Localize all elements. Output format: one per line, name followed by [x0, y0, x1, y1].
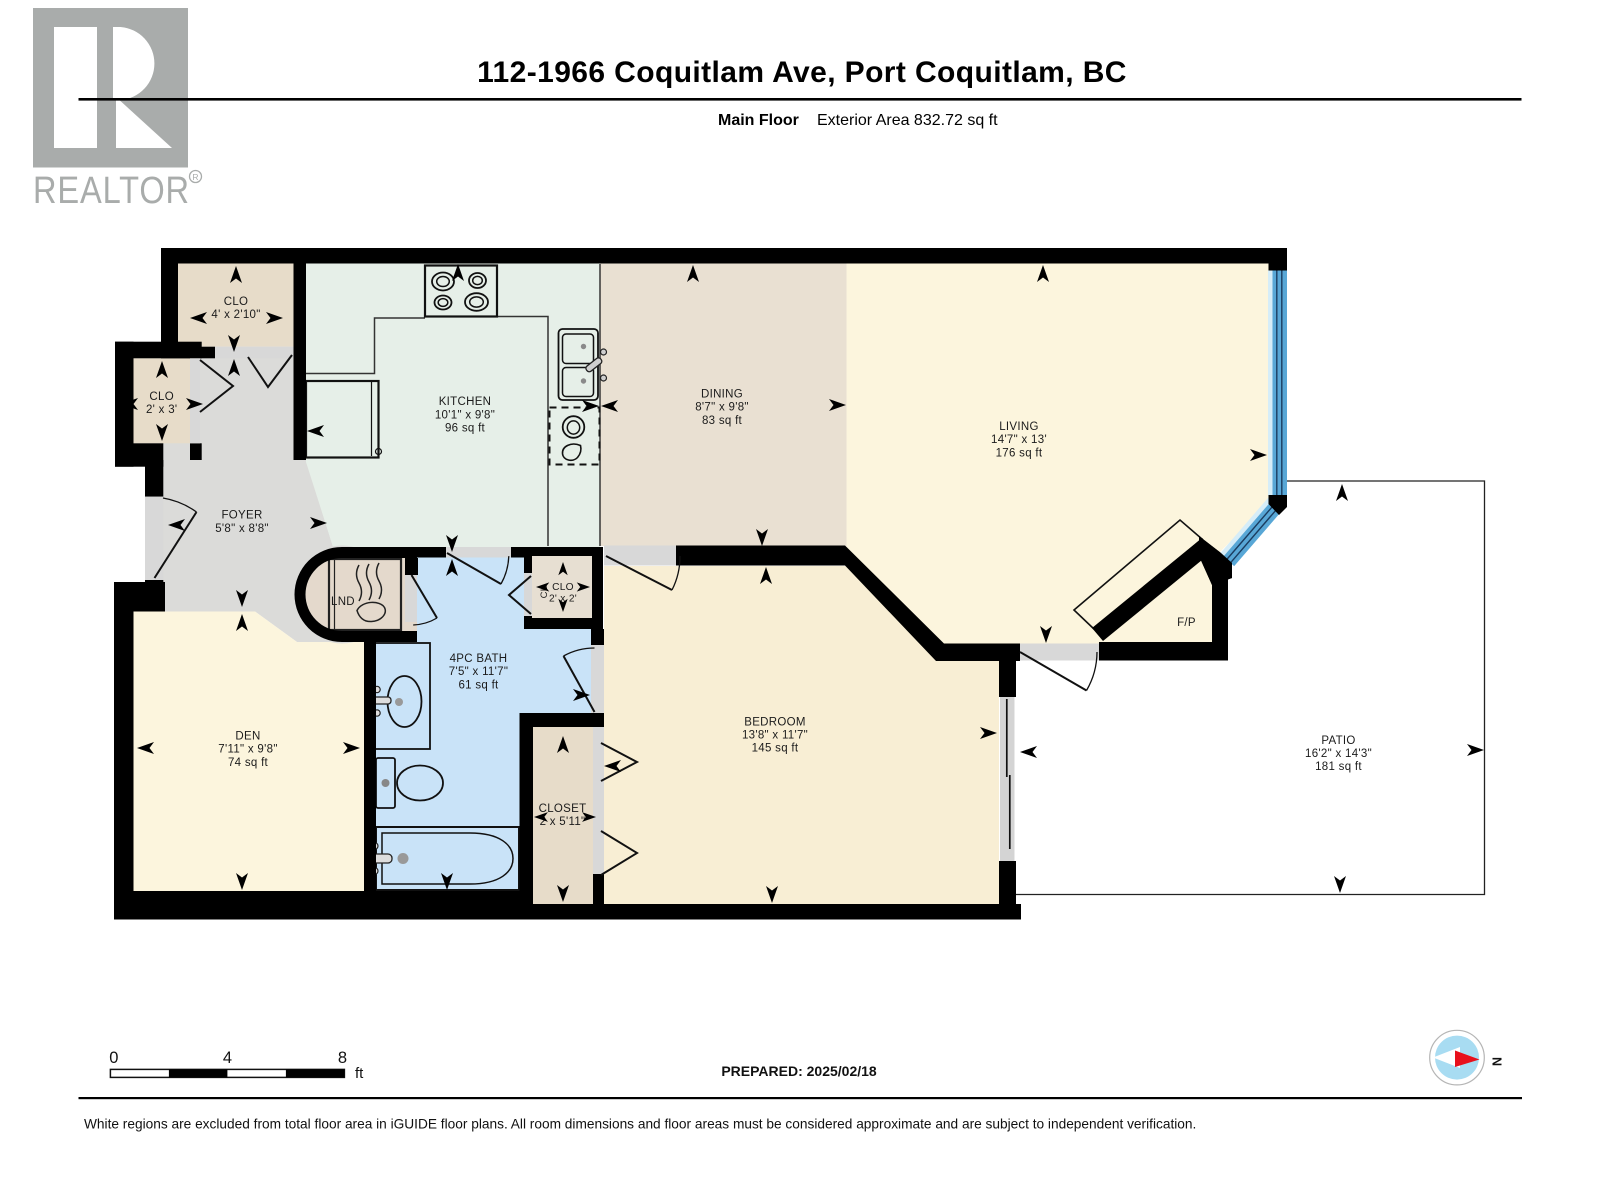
svg-text:145 sq ft: 145 sq ft — [752, 743, 799, 755]
svg-text:REALTOR: REALTOR — [33, 169, 190, 212]
svg-text:112-1966 Coquitlam Ave, Port C: 112-1966 Coquitlam Ave, Port Coquitlam, … — [477, 56, 1127, 89]
svg-text:7'5" x 11'7": 7'5" x 11'7" — [449, 666, 508, 678]
svg-text:4' x 2'10": 4' x 2'10" — [211, 309, 260, 321]
svg-text:83 sq ft: 83 sq ft — [702, 415, 743, 427]
svg-text:5'8" x 8'8": 5'8" x 8'8" — [215, 523, 269, 535]
svg-text:LND: LND — [331, 596, 355, 608]
svg-text:4PC BATH: 4PC BATH — [450, 653, 508, 665]
svg-text:KITCHEN: KITCHEN — [439, 396, 492, 408]
svg-text:176 sq ft: 176 sq ft — [996, 447, 1043, 459]
svg-text:7'11" x 9'8": 7'11" x 9'8" — [218, 744, 277, 756]
svg-text:181 sq ft: 181 sq ft — [1315, 761, 1362, 773]
svg-text:CLO: CLO — [149, 391, 174, 403]
svg-text:PATIO: PATIO — [1321, 735, 1355, 747]
svg-text:74 sq ft: 74 sq ft — [228, 757, 269, 769]
svg-text:96 sq ft: 96 sq ft — [445, 423, 486, 435]
svg-text:16'2" x 14'3": 16'2" x 14'3" — [1305, 748, 1372, 760]
svg-text:DEN: DEN — [235, 731, 260, 743]
svg-text:DINING: DINING — [701, 389, 743, 401]
svg-text:8: 8 — [338, 1049, 347, 1067]
svg-text:White regions are excluded fro: White regions are excluded from total fl… — [84, 1117, 1196, 1132]
svg-text:CLO: CLO — [552, 582, 574, 593]
svg-text:Exterior Area 832.72 sq ft: Exterior Area 832.72 sq ft — [817, 112, 998, 129]
svg-text:2 x 5'11": 2 x 5'11" — [540, 816, 586, 828]
svg-text:Main Floor: Main Floor — [718, 112, 799, 129]
svg-text:R: R — [192, 172, 198, 182]
svg-text:BEDROOM: BEDROOM — [744, 716, 806, 728]
svg-text:4: 4 — [223, 1049, 232, 1067]
svg-text:PREPARED: 2025/02/18: PREPARED: 2025/02/18 — [721, 1063, 877, 1079]
svg-text:CLO: CLO — [224, 296, 249, 308]
svg-text:61 sq ft: 61 sq ft — [458, 679, 499, 691]
svg-text:8'7" x 9'8": 8'7" x 9'8" — [695, 402, 749, 414]
svg-text:0: 0 — [109, 1049, 118, 1067]
svg-text:ft: ft — [355, 1065, 364, 1082]
svg-text:14'7" x 13': 14'7" x 13' — [991, 434, 1047, 446]
svg-text:10'1" x 9'8": 10'1" x 9'8" — [435, 409, 495, 421]
svg-text:N: N — [1490, 1057, 1504, 1066]
svg-text:FOYER: FOYER — [221, 510, 262, 522]
svg-text:LIVING: LIVING — [999, 421, 1039, 433]
svg-text:F/P: F/P — [1177, 617, 1196, 629]
svg-text:13'8" x 11'7": 13'8" x 11'7" — [742, 730, 808, 742]
svg-text:2' x 3': 2' x 3' — [146, 404, 177, 416]
